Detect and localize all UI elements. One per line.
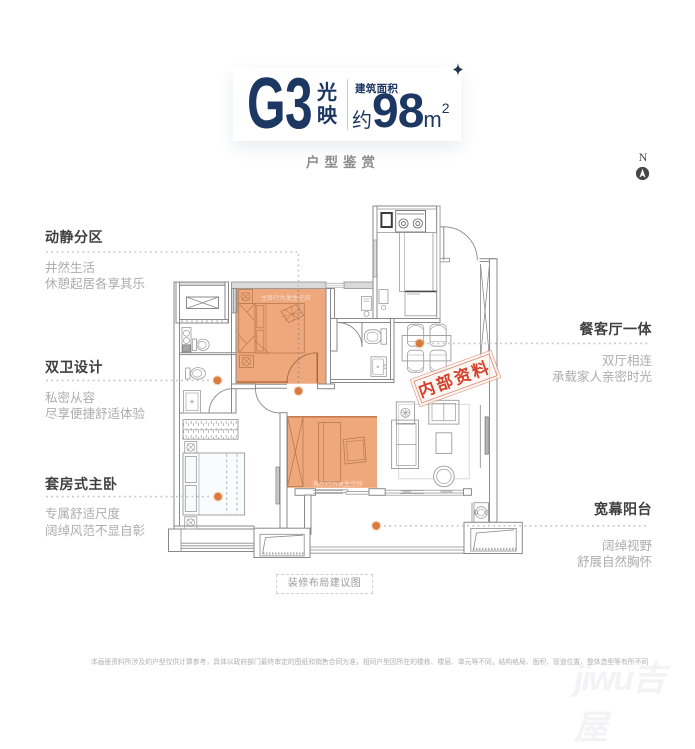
svg-text:客厅行为发生空间: 客厅行为发生空间 bbox=[313, 480, 363, 488]
svg-text:主卧行为发生空间: 主卧行为发生空间 bbox=[261, 294, 311, 302]
